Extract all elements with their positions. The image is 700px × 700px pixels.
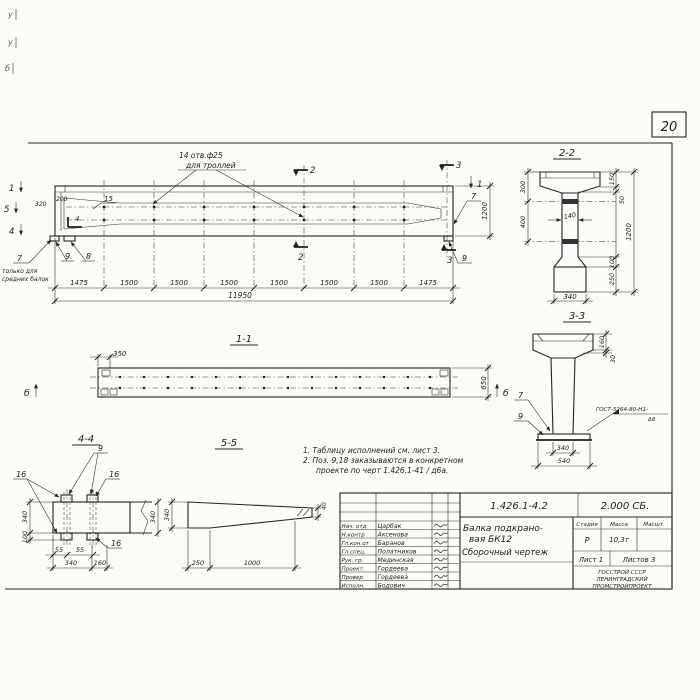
stage-label: Стадия <box>576 522 598 528</box>
dim-250: 250 <box>608 273 616 285</box>
pos-15-label: 15 <box>104 195 113 203</box>
dim-total-11950: 11950 <box>228 291 252 300</box>
marker-2: 2 <box>298 253 303 263</box>
note-line-2: 2. Поз. 9,18 заказываются в конкретном <box>303 456 464 465</box>
callout-16: 16 <box>109 470 119 479</box>
staff-table: Нач. отд Царбак Н.контр Аксенова Гл.кон.… <box>342 522 448 590</box>
dim-1000: 1000 <box>244 559 261 567</box>
dim-1200: 1200 <box>481 202 489 220</box>
staff-name: Мединская <box>378 557 414 564</box>
sheet-number: 20 <box>661 120 678 135</box>
cut-marks-2-3: 2 2 3 3 <box>293 161 461 266</box>
org-line-2: ЛЕНИНГРАДСКИЙ <box>595 576 648 583</box>
staff-role: Н.контр <box>342 533 366 539</box>
dim-340: 340 <box>557 444 569 452</box>
dim-1475: 1475 <box>419 279 437 287</box>
callout-16: 16 <box>16 470 26 479</box>
note-line-1: 1. Таблицу исполнений см. лист 3. <box>303 446 440 455</box>
callout-9-left: 9 <box>56 242 74 261</box>
staff-role: Гл.спец. <box>342 550 366 556</box>
title-block: Нач. отд Царбак Н.контр Аксенова Гл.кон.… <box>340 493 672 590</box>
dim-50: 50 <box>618 196 626 204</box>
dim-340-bottom: 340 <box>65 559 77 567</box>
sheets-info: Листов 3 <box>622 556 656 564</box>
dim-400: 400 <box>519 216 527 228</box>
dim-340: 340 <box>163 509 171 521</box>
staff-role: Гл.кон.от <box>342 541 370 547</box>
weld-note-line2: Δ6 <box>647 417 656 423</box>
dim-540: 540 <box>558 457 570 465</box>
callout-16: 16 <box>111 539 121 548</box>
org-line-3: ПРОМСТРОЙПРОЕКТ <box>593 583 653 590</box>
scale-label: Масшт. <box>643 522 665 528</box>
dim-340: 340 <box>563 293 577 301</box>
dim-30: 30 <box>609 355 617 363</box>
corner-mark: б <box>5 64 10 73</box>
dim-55: 55 <box>76 546 84 554</box>
marker-1: 1 <box>477 180 482 190</box>
dim-55: 55 <box>55 546 63 554</box>
section-arrow-right-1: 1 <box>471 176 482 190</box>
sheet-info: Лист 1 <box>578 556 603 564</box>
callout-7-left: 7 только для средних балок <box>2 240 51 283</box>
sheet-number-box: 20 <box>652 112 686 137</box>
dim-320: 320 <box>35 201 47 208</box>
staff-name: Баранов <box>378 540 406 547</box>
callout-9: 9 <box>462 254 467 263</box>
callout-8: 8 <box>71 242 95 261</box>
note-line-3: проекте по черт 1.426.1-41 / д6а. <box>316 466 448 475</box>
dim-height-1200: 1200 <box>455 182 494 240</box>
staff-name: Гордеева <box>378 574 409 581</box>
section-5-5-title: 5-5 <box>221 438 237 449</box>
t-section-outline <box>540 172 600 193</box>
drawing-title-line3: Сборочный чертеж <box>462 548 548 558</box>
mass-value: 10,3т <box>609 536 630 544</box>
staff-role: Рук. гр. <box>342 558 364 564</box>
main-elevation-view: 14 отв.ф25 для троллей 320 200 15 4 1 5 … <box>2 151 494 304</box>
corner-marks: у у б <box>5 9 16 74</box>
callout-9-right: 9 <box>449 242 472 263</box>
dim-100: 100 <box>608 256 616 268</box>
org-line-1: ГОССТРОЙ СССР <box>598 569 646 576</box>
dim-160: 160 <box>94 559 106 567</box>
dim-150: 150 <box>608 173 616 185</box>
cut-4-label: 4 <box>75 215 79 223</box>
marker-b: б <box>24 389 30 399</box>
callout-8: 8 <box>86 252 91 261</box>
weld-note: ГОСТ-5264-80-Н1- Δ6 <box>587 407 668 431</box>
signature-marks <box>434 524 448 586</box>
dim-100: 100 <box>21 531 29 543</box>
marker-5: 5 <box>4 205 9 215</box>
stage-value: Р <box>585 536 590 545</box>
callout-7: 7 <box>518 391 524 400</box>
staff-name: Аксенова <box>377 532 409 539</box>
mass-label: Масса <box>610 522 628 528</box>
callout-9: 9 <box>518 412 523 421</box>
marker-3: 3 <box>447 256 452 266</box>
dim-1500: 1500 <box>270 279 288 287</box>
staff-role: Нач. отд <box>342 524 367 530</box>
staff-name: Гордеева <box>378 566 409 573</box>
dim-140: 140 <box>563 211 577 221</box>
notes: 1. Таблицу исполнений см. лист 3. 2. Поз… <box>303 446 464 475</box>
section-4-4-title: 4-4 <box>78 434 94 445</box>
callout-9: 9 <box>65 252 70 261</box>
callout-9: 9 <box>98 444 103 453</box>
dim-1500: 1500 <box>120 279 138 287</box>
dim-200: 200 <box>56 196 68 203</box>
t-section-outline <box>533 334 593 358</box>
marker-b: б <box>503 389 509 399</box>
weld-note-line1: ГОСТ-5264-80-Н1- <box>596 407 648 413</box>
dim-1500: 1500 <box>320 279 338 287</box>
corner-mark: у <box>7 38 13 47</box>
dim-650: 650 <box>480 376 488 390</box>
section-4-4: 4-4 9 16 16 16 <box>13 434 161 571</box>
dim-350: 350 <box>113 350 127 358</box>
staff-role: Проект. <box>342 567 365 573</box>
marker-1: 1 <box>9 184 14 194</box>
dim-1475: 1475 <box>70 279 88 287</box>
section-arrows-left: 1 5 4 <box>4 181 21 237</box>
dim-1200: 1200 <box>625 223 633 241</box>
marker-2: 2 <box>310 166 315 176</box>
dim-160: 160 <box>598 336 606 348</box>
section-1-1-title: 1-1 <box>236 334 252 345</box>
dim-250: 250 <box>192 559 204 567</box>
trolley-note-line1: 14 отв.ф25 <box>179 151 223 160</box>
section-1-1: 1-1 350 <box>24 334 509 401</box>
staff-name: Полатников <box>378 549 417 556</box>
taper-plate-outline <box>188 502 312 528</box>
note-only-line1: только для <box>2 268 38 275</box>
corner-mark: у <box>7 10 13 19</box>
doc-code: 2.000 СБ. <box>601 501 650 512</box>
sheet-frame <box>5 143 672 589</box>
cut-mark-4: 4 <box>68 215 82 227</box>
plan-outline <box>98 368 450 397</box>
drawing-canvas: 20 у у б <box>0 0 700 700</box>
staff-name: Царбак <box>378 522 402 530</box>
drawing-title-line2: вая БК12 <box>469 535 512 545</box>
trolley-note-line2: для троллей <box>185 161 236 170</box>
callout-7-right: 7 <box>454 192 481 224</box>
doc-number: 1.426.1-4.2 <box>490 501 548 512</box>
staff-name: Бодович <box>378 583 406 590</box>
dim-40: 40 <box>321 502 328 510</box>
section-2-2: 2-2 140 300 400 <box>519 148 638 304</box>
dim-340-left: 340 <box>21 511 29 523</box>
drawing-sheet: 20 у у б <box>0 0 700 700</box>
dim-1500: 1500 <box>170 279 188 287</box>
note-only-line2: средних балок <box>2 276 49 283</box>
marker-3: 3 <box>456 161 461 171</box>
section-3-3-title: 3-3 <box>569 311 585 322</box>
dim-1500: 1500 <box>220 279 238 287</box>
plan-holes <box>119 376 431 389</box>
staff-role: Провер. <box>342 575 365 581</box>
dim-340-right: 340 <box>149 511 157 523</box>
detail-outline <box>53 502 130 533</box>
drawing-title-line1: Балка подкрано- <box>463 524 543 534</box>
staff-role: Исполн. <box>342 584 366 590</box>
callout-7: 7 <box>471 192 477 201</box>
marker-4: 4 <box>9 227 14 237</box>
callout-7: 7 <box>17 254 23 263</box>
section-3-3: 3-3 160 30 7 9 ГОСТ-5264-80-Н1- Δ6 <box>514 311 668 469</box>
dim-300: 300 <box>519 181 527 193</box>
section-2-2-title: 2-2 <box>559 148 575 159</box>
dim-1500: 1500 <box>370 279 388 287</box>
